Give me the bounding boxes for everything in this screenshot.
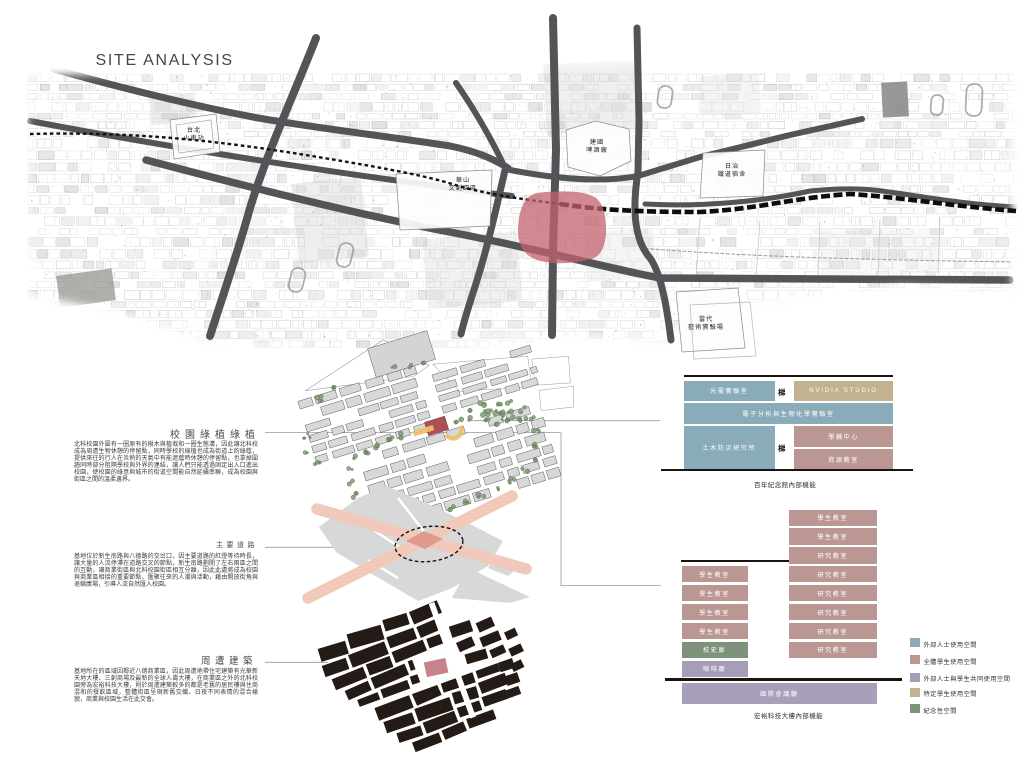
svg-text:啤酒廠: 啤酒廠 xyxy=(586,146,608,154)
svg-text:日治: 日治 xyxy=(725,162,739,170)
svg-text:鐵道宿舍: 鐵道宿舍 xyxy=(718,170,747,178)
svg-text:華山: 華山 xyxy=(456,176,470,184)
svg-text:台北: 台北 xyxy=(187,126,201,134)
svg-text:藝術實驗場: 藝術實驗場 xyxy=(688,323,724,331)
svg-text:當代: 當代 xyxy=(699,315,713,323)
svg-text:建國: 建國 xyxy=(590,138,604,146)
